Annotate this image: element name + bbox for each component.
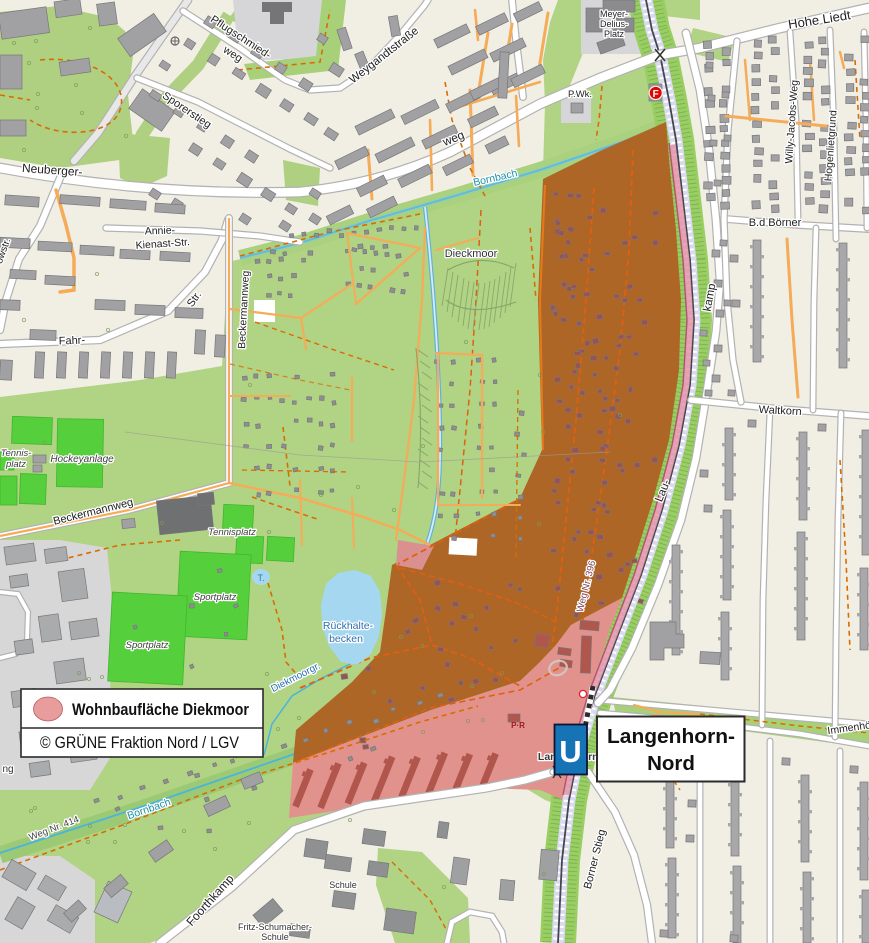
svg-text:ng: ng (2, 764, 13, 775)
svg-text:Wohnbaufläche Diekmoor: Wohnbaufläche Diekmoor (72, 700, 249, 719)
svg-text:Rückhalte-: Rückhalte- (323, 620, 374, 632)
svg-text:T.: T. (257, 573, 264, 583)
svg-text:P.Wk.: P.Wk. (568, 89, 592, 100)
svg-text:Fahr-: Fahr- (59, 335, 86, 348)
svg-text:Sportplatz: Sportplatz (194, 592, 237, 603)
svg-text:Nord: Nord (647, 752, 695, 775)
svg-text:Schule: Schule (329, 880, 357, 890)
svg-text:Fritz-Schumacher-: Fritz-Schumacher- (238, 922, 312, 932)
svg-text:Langenhorn-: Langenhorn- (607, 725, 735, 748)
svg-text:Schule: Schule (261, 932, 289, 942)
svg-text:Tennisplatz: Tennisplatz (208, 527, 256, 538)
svg-text:Platz: Platz (604, 29, 625, 39)
svg-text:Tennis-: Tennis- (1, 448, 32, 459)
svg-text:Annie-: Annie- (145, 224, 176, 237)
svg-text:Meyer-: Meyer- (600, 9, 628, 19)
svg-text:becken: becken (329, 633, 363, 645)
svg-text:platz: platz (5, 459, 26, 470)
svg-text:Delius-: Delius- (600, 19, 628, 29)
svg-text:© GRÜNE Fraktion Nord / LGV: © GRÜNE Fraktion Nord / LGV (40, 734, 239, 752)
svg-text:Waltkorn: Waltkorn (758, 404, 802, 418)
svg-text:Sportplatz: Sportplatz (126, 640, 169, 651)
svg-text:Dieckmoor: Dieckmoor (445, 248, 498, 260)
svg-text:F: F (653, 89, 659, 100)
svg-text:B.d Börner: B.d Börner (749, 217, 802, 229)
svg-text:U: U (559, 734, 581, 769)
svg-text:Hockeyanlage: Hockeyanlage (50, 454, 114, 465)
svg-text:P·R: P·R (511, 721, 525, 730)
